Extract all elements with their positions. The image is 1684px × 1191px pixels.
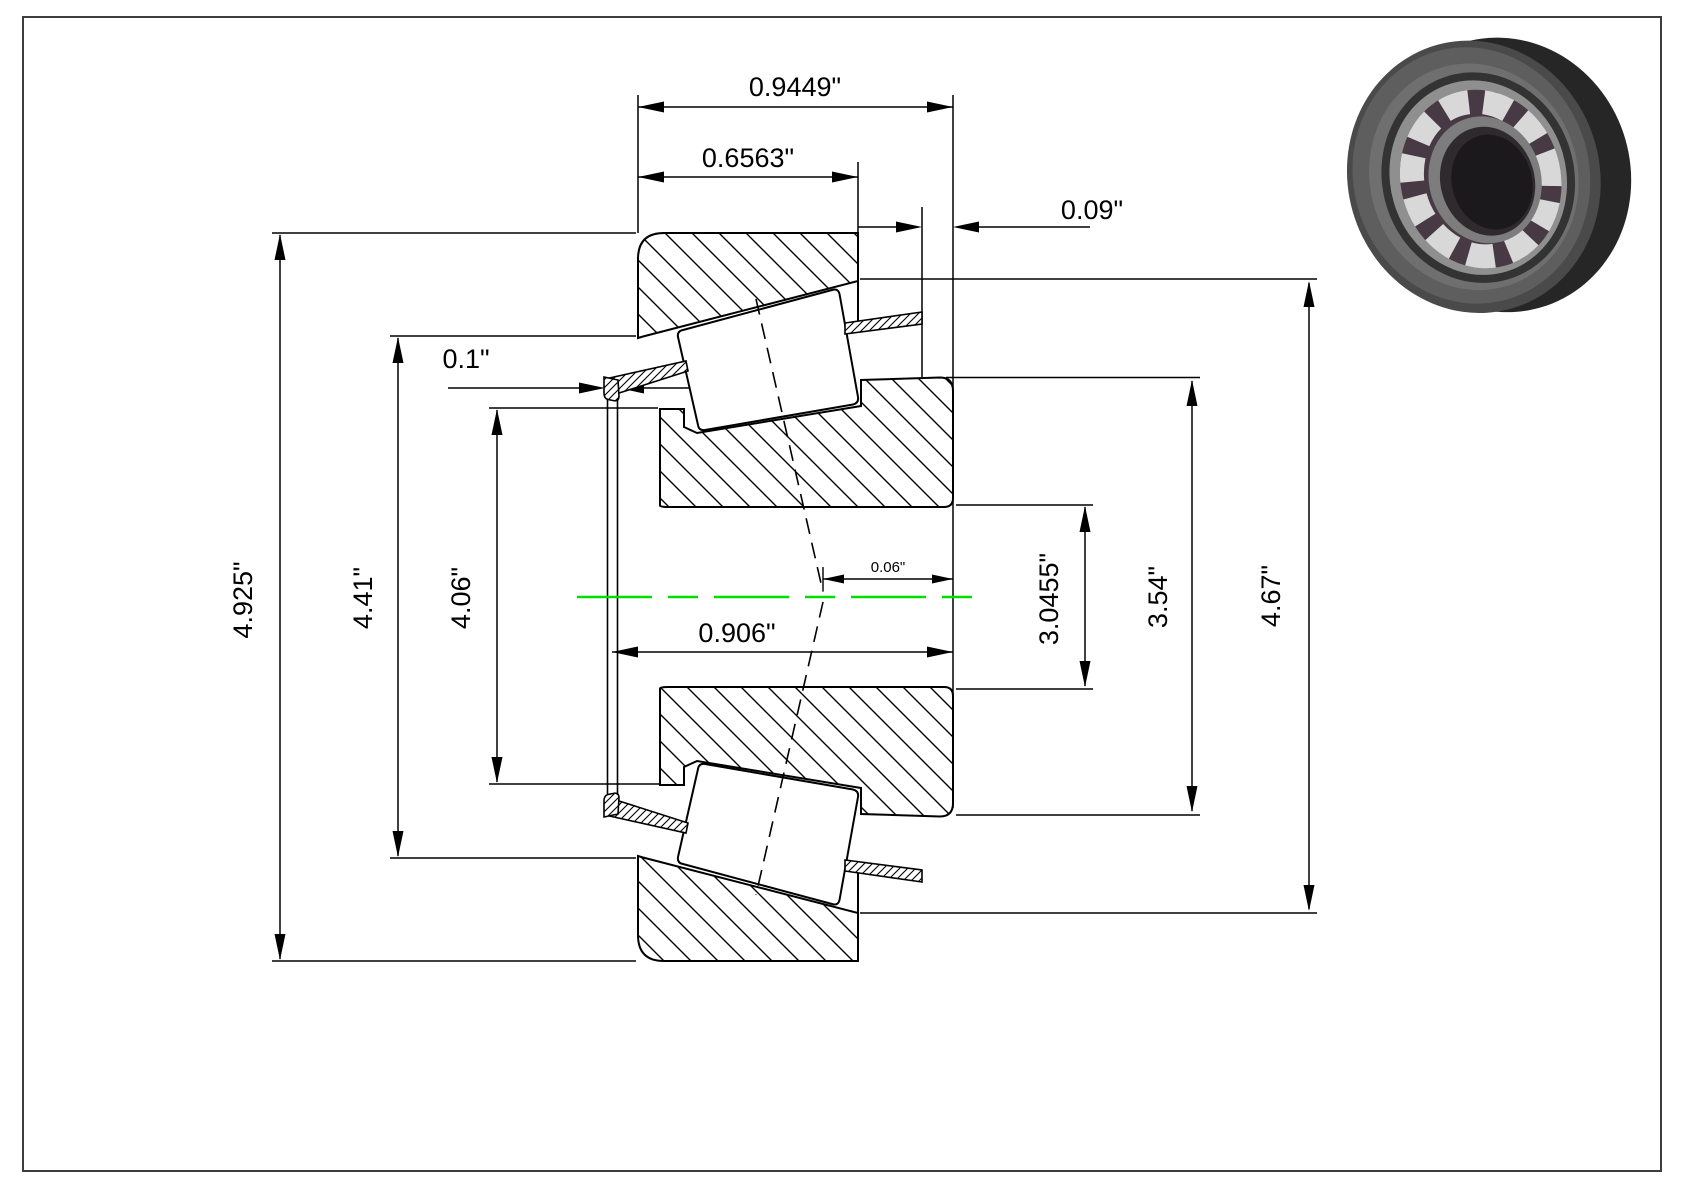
dim-bore: 3.0455" [956,505,1093,689]
dim-rib-od: 3.54" [946,378,1200,816]
dim-label-cup-od: 4.67" [1256,565,1286,627]
dim-effective-center: 0.06" [823,559,953,591]
dim-cup-od: 4.67" [860,279,1317,913]
bearing-drawing: 0.9449" 0.6563" 0.09" 0.1" 0.906" [0,0,1684,1191]
dim-label-effective-center: 0.06" [871,559,906,576]
dim-label-cage-lip: 0.1" [442,344,489,374]
dim-label-cone-width: 0.906" [698,618,775,648]
drawing-canvas: 0.9449" 0.6563" 0.09" 0.1" 0.906" [0,0,1684,1191]
cage-strip-bottom-right [845,860,922,882]
cage-lip-top [604,377,619,401]
dim-label-rib-od: 3.54" [1143,566,1173,628]
dim-label-cage-id: 4.06" [446,567,476,629]
dim-back-clearance: 0.09" [858,195,1123,377]
dim-label-cage-od: 4.41" [348,567,378,629]
dim-od-outer: 4.925" [228,233,636,961]
cage-lip-bottom [604,793,619,817]
dim-label-od-outer: 4.925" [228,561,258,638]
dim-label-cup-width: 0.6563" [702,143,794,173]
bearing-photo [1315,2,1664,350]
dim-label-bore: 3.0455" [1034,553,1064,645]
dim-label-back-clearance: 0.09" [1061,195,1123,225]
dim-label-total-width: 0.9449" [749,72,841,102]
cage-strip-top-right [845,312,922,334]
dim-cup-width: 0.6563" [638,143,858,233]
dim-cone-width: 0.906" [612,618,953,658]
